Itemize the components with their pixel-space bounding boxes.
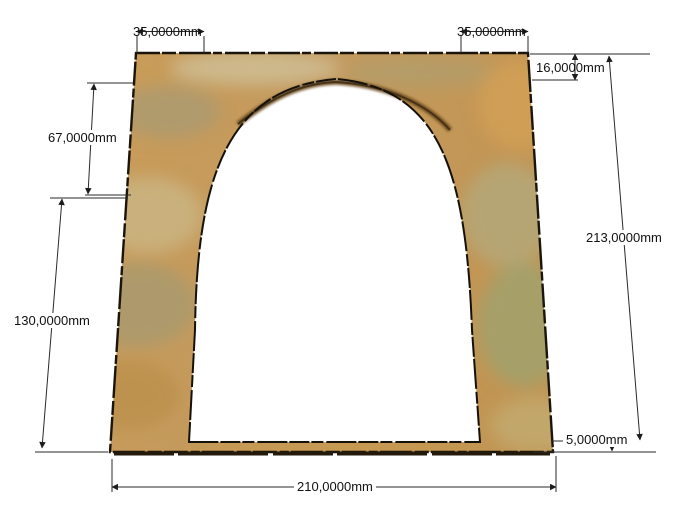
dim-label-overall-height: 213,0000mm: [583, 230, 665, 245]
dim-label-top-right-margin: 35,0000mm: [457, 24, 526, 39]
dim-label-lower-side: 130,0000mm: [11, 313, 93, 328]
dim-label-upper-side: 67,0000mm: [45, 130, 120, 145]
dim-label-bottom-strip: 5,0000mm: [563, 432, 630, 447]
drawing-viewport: 35,0000mm 35,0000mm 16,0000mm 67,0000mm …: [0, 0, 700, 518]
dim-label-overall-width: 210,0000mm: [294, 479, 376, 494]
dim-line-213: [609, 56, 640, 440]
dim-label-top-left-margin: 35,0000mm: [133, 24, 202, 39]
dim-label-apex-drop: 16,0000mm: [536, 60, 605, 75]
